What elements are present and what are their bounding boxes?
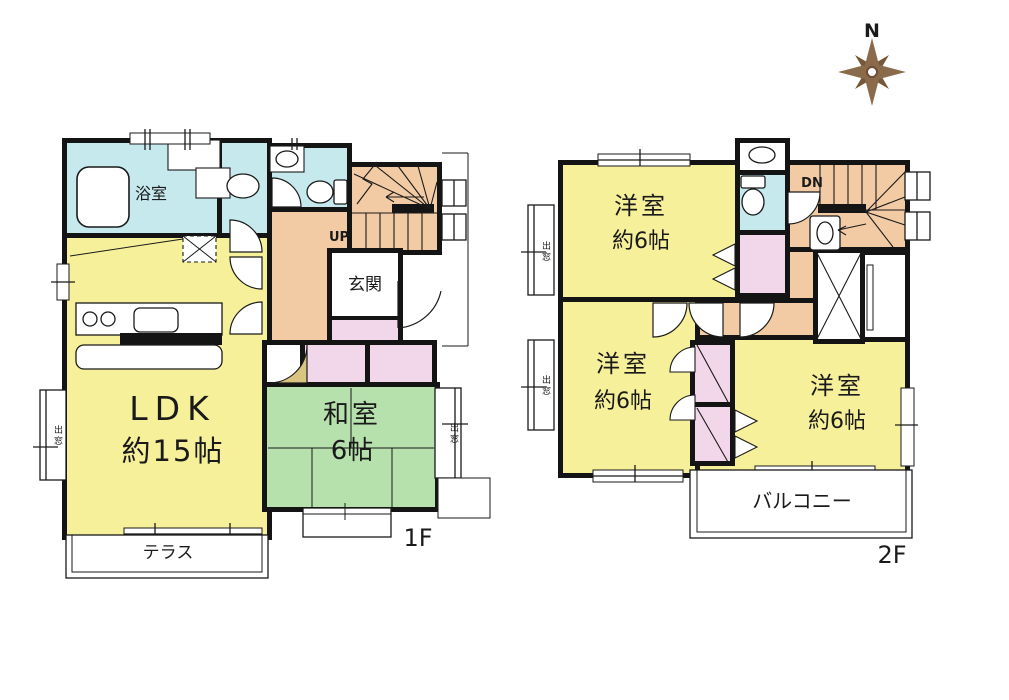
compass-north-label: N xyxy=(858,22,886,42)
label-bay-window-1f-right: 出窓 xyxy=(441,408,457,460)
closet-2f-mid-upper xyxy=(690,340,735,407)
staircase-2f xyxy=(785,160,910,252)
label-bathroom: 浴室 xyxy=(122,186,180,203)
label-bedroom-top: 洋室 xyxy=(596,194,686,219)
entrance-genkan xyxy=(327,248,403,345)
label-floor-1f: 1F xyxy=(392,526,444,551)
label-balcony: バルコニー xyxy=(740,491,864,512)
label-bedroom-right: 洋室 xyxy=(792,374,882,399)
label-bedroom-right-size: 約6帖 xyxy=(784,410,890,433)
closet-2f-mid-lower xyxy=(690,402,735,466)
toilet-1f xyxy=(267,143,352,212)
label-ldk: LDK xyxy=(95,392,250,427)
label-stairs-dn: DN xyxy=(795,177,829,191)
toilet-2f xyxy=(735,170,790,235)
label-washitsu: 和室 xyxy=(310,402,394,429)
label-bay-window-1f-left: 出窓 xyxy=(45,410,61,462)
closet-1f-left xyxy=(300,340,370,387)
compass-icon xyxy=(838,38,906,106)
void-shaft-2f xyxy=(813,248,865,344)
label-ldk-size: 約15帖 xyxy=(88,436,258,466)
label-terrace: テラス xyxy=(132,545,204,563)
closet-2f-top xyxy=(735,230,790,298)
label-floor-2f: 2F xyxy=(866,543,918,568)
label-washitsu-size: 6帖 xyxy=(316,438,388,465)
floorplan-canvas: N 浴室 UP 玄関 LDK 約15帖 和室 6帖 テラス 出窓 出窓 1F 洋… xyxy=(0,0,1009,700)
entrance-step xyxy=(332,316,398,340)
label-bay-window-2f-bottom: 出窓 xyxy=(533,360,549,412)
label-bedroom-left-size: 約6帖 xyxy=(570,390,676,413)
bedroom-2f-left xyxy=(558,297,700,478)
washitsu-doorway xyxy=(262,340,305,387)
ldk-room xyxy=(62,233,272,540)
staircase-1f xyxy=(347,162,442,255)
label-entrance: 玄関 xyxy=(336,277,394,295)
label-bedroom-top-size: 約6帖 xyxy=(588,230,694,253)
storage-2f xyxy=(860,250,910,342)
entrance-door-arc xyxy=(398,281,441,328)
closet-1f-right xyxy=(365,340,437,387)
label-bay-window-2f-top: 出窓 xyxy=(533,226,549,278)
label-stairs-up: UP xyxy=(322,231,356,245)
label-bedroom-left: 洋室 xyxy=(578,352,668,377)
